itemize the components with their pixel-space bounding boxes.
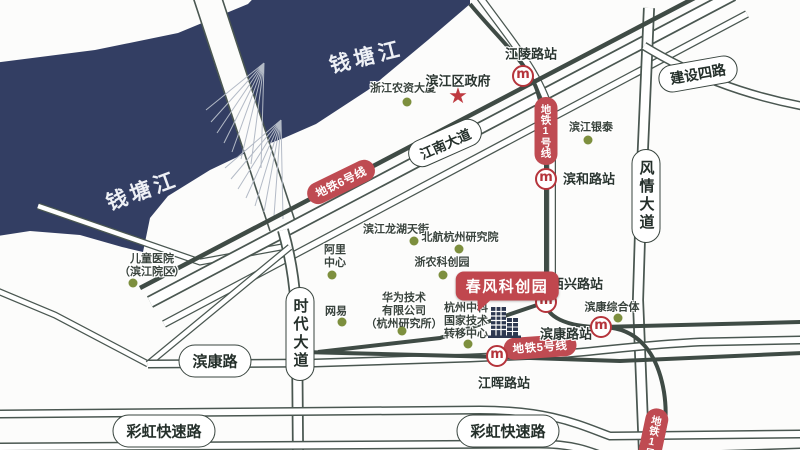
poi-label-ali-center: 阿里 中心 (324, 244, 346, 270)
poi-dot-binjiang-intime (584, 136, 593, 145)
poi-label-binjiang-intime: 滨江银泰 (569, 121, 613, 134)
station-label-jianghui: 江晖路站 (478, 373, 530, 392)
star-icon: ★ (448, 85, 468, 107)
road-label-caihong-west: 彩虹快速路 (112, 415, 215, 448)
metro-label-line1-top: 地铁1号线 (535, 97, 558, 165)
poi-dot-zhenong-park (439, 271, 448, 280)
metro-station-icon-jiangling: m (512, 65, 534, 87)
road-label-caihong-east: 彩虹快速路 (456, 415, 559, 448)
building-icon (485, 305, 523, 339)
poi-dot-ali-center (328, 271, 337, 280)
station-label-xixing: 西兴路站 (551, 274, 603, 293)
metro-station-icon-binkang: m (590, 316, 612, 338)
poi-dot-binkang-complex (614, 314, 623, 323)
poi-label-children-hospital: 儿童医院 （滨江院区） (119, 253, 185, 279)
poi-label-huawei: 华为技术 有限公司 （杭州研究所） (366, 292, 443, 332)
road-label-binkang: 滨康路 (178, 345, 251, 378)
poi-label-longhu-tianjie: 滨江龙湖天街 (363, 223, 429, 236)
road-label-fengqing-avenue: 风情大道 (632, 149, 661, 243)
poi-label-beihang-institute: 北航杭州研究院 (422, 231, 499, 244)
metro-station-icon-binhe: m (535, 168, 557, 190)
poi-dot-nongzi-building (403, 98, 412, 107)
poi-dot-zhongke-center (464, 340, 473, 349)
station-label-binhe: 滨和路站 (563, 169, 615, 188)
poi-dot-netease (338, 318, 347, 327)
poi-dot-huawei (398, 327, 407, 336)
road-label-shidai-avenue: 时代大道 (286, 287, 315, 381)
poi-label-netease: 网易 (325, 305, 347, 318)
metro-station-icon-jianghui: m (486, 345, 508, 367)
poi-dot-longhu-tianjie (410, 237, 419, 246)
highlight-callout-chunfeng-park: 春风科创园 (456, 272, 559, 301)
location-map: 钱塘江 钱塘江 江南大道 建设四路 风情大道 时代大道 滨康路 彩虹快速路 彩虹… (0, 0, 800, 450)
poi-dot-children-hospital (129, 279, 138, 288)
poi-label-binkang-complex: 滨康综合体 (585, 301, 640, 314)
poi-dot-beihang-institute (455, 245, 464, 254)
station-label-jiangling: 江陵路站 (505, 44, 557, 63)
station-label-binkang: 滨康路站 (540, 324, 592, 343)
poi-label-zhenong-park: 浙农科创园 (415, 256, 470, 269)
